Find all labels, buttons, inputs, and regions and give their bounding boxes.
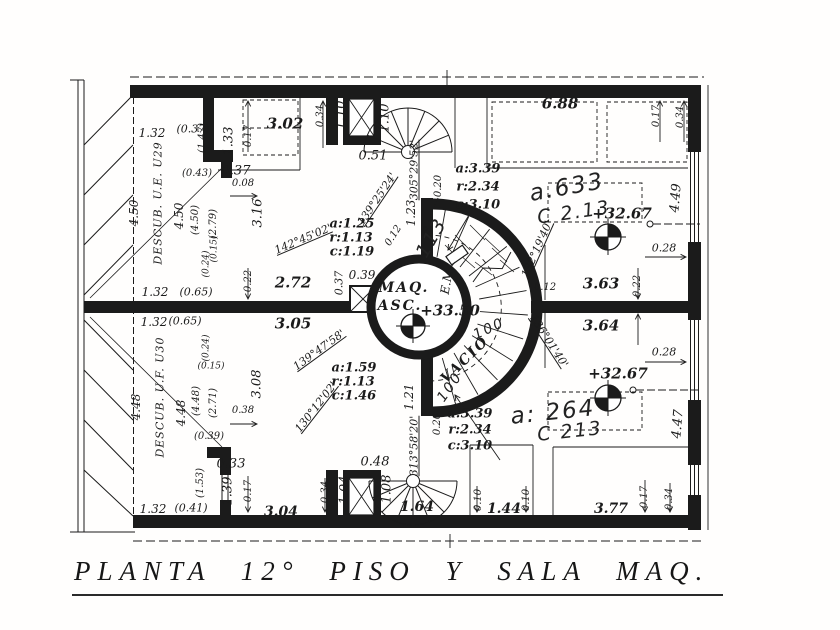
dim-label: 0.33 (217, 458, 246, 471)
level-marker-label: +32.67 (588, 367, 648, 382)
dim-label: (0.65) (179, 287, 212, 298)
dim-label: 0.37 (334, 271, 345, 296)
room-area-label: 3.05 (275, 317, 312, 332)
dim-label: 4.48 (175, 400, 187, 427)
room-area-label: 6.88 (542, 97, 579, 112)
room-area-label: 3.64 (583, 319, 620, 334)
angle-label: 305°29'52' (409, 140, 420, 201)
zone-label: DESCUB. U.F. U30 (155, 336, 166, 457)
dim-label: c:3.10 (456, 199, 500, 212)
drawing-title: PLANTA 12° PISO Y SALA MAQ. (72, 556, 723, 596)
dim-label: 0.34 (665, 488, 675, 510)
dim-label: 0.28 (652, 243, 677, 254)
dim-label: (0.15) (197, 363, 224, 372)
dim-label: (0.65) (168, 316, 201, 327)
dim-label: (0.24) (203, 250, 212, 277)
dim-label: 0.34 (676, 106, 686, 128)
dim-label: a:3.39 (456, 163, 501, 176)
dim-label: 3.08 (251, 370, 264, 399)
dim-label: 0.22 (633, 275, 643, 297)
dim-label: 3.16 (252, 199, 265, 228)
dim-label: c:1.46 (332, 390, 376, 403)
dim-label: 4.50 (173, 203, 185, 230)
zone-label: DESCUB. U.E. U29 (153, 141, 164, 264)
dim-label: 1.10 (335, 101, 348, 130)
angle-label: 313°58'20' (409, 416, 420, 477)
dim-label: 4.50 (128, 200, 140, 227)
dim-label: 0.48 (361, 456, 390, 469)
dim-label: 0.34 (321, 481, 331, 503)
dim-label: 0.20 (433, 413, 443, 435)
dim-label: 1.32 (142, 286, 169, 298)
dim-label: (2.71) (209, 388, 219, 418)
machine-room-label: MAQ. (379, 281, 430, 295)
dim-label: 0.51 (359, 150, 388, 163)
dim-label: r:2.34 (448, 424, 491, 437)
machine-room-label: ASC. (378, 299, 423, 313)
dim-label: 0.08 (232, 179, 254, 189)
dim-label: (0.24) (203, 334, 212, 361)
dim-label: c:3.10 (448, 440, 492, 453)
dim-label: 1.39 (222, 477, 235, 506)
dim-label: 0.38 (232, 406, 254, 416)
dim-label: 0.22 (244, 270, 254, 292)
dim-label: 0.17 (244, 125, 254, 147)
floor-plan-sheet: 1.32(0.37)1.330.173.02(1.47)0.341.101.10… (0, 0, 840, 630)
dim-label: 0.17 (244, 480, 254, 502)
room-area-label: 3.63 (583, 277, 620, 292)
dim-label: 1.10 (379, 104, 392, 133)
dim-label: 1.32 (141, 316, 168, 328)
dim-label: 1.32 (139, 127, 166, 139)
dim-label: 0.34 (316, 105, 326, 127)
dim-label: (1.53) (196, 468, 206, 498)
dim-label: 4.48 (130, 394, 142, 421)
level-marker-label: +33.50 (420, 304, 480, 319)
dim-label: 1.23 (405, 200, 417, 227)
dim-label: 0.37 (222, 165, 251, 178)
room-area-label: 3.02 (267, 117, 304, 132)
dim-label: 0.17 (652, 105, 662, 127)
dim-label: 1.33 (223, 127, 236, 156)
dim-label: 0.28 (652, 347, 677, 358)
dim-label: a:3.39 (448, 408, 493, 421)
dim-label: 1.04 (339, 476, 352, 505)
room-area-label: 3.04 (264, 505, 298, 519)
dim-label: (0.41) (174, 503, 207, 514)
room-area-label: 2.72 (275, 276, 312, 291)
dim-label: 4.47 (670, 409, 685, 439)
dim-label: 0.39 (349, 269, 376, 281)
dim-label: 0.17 (640, 486, 650, 508)
dim-label: 0.20 (434, 175, 444, 197)
dim-label: (4.50) (191, 205, 201, 235)
dim-label: 0.10 (522, 489, 532, 511)
dim-label: 1.32 (140, 503, 167, 515)
dim-label: 0.10 (474, 489, 484, 511)
room-area-label: 1.64 (400, 500, 434, 514)
dim-label: a:1.59 (332, 362, 377, 375)
dim-label: (0.39) (194, 432, 224, 442)
dim-label: r:1.13 (329, 232, 372, 245)
dim-label: r:2.34 (456, 181, 499, 194)
dim-label: (1.47) (198, 123, 208, 153)
room-area-label: 3.77 (594, 502, 628, 516)
dim-label: c:1.19 (330, 246, 374, 259)
dim-label: (0.43) (182, 169, 212, 179)
dim-label: 0.12 (534, 283, 556, 293)
dim-label: 4.49 (668, 183, 683, 213)
dim-label: 1.21 (403, 384, 415, 411)
dim-label: (0.15) (211, 235, 220, 262)
dim-label: (4.48) (192, 386, 202, 416)
room-area-label: 1.44 (487, 502, 521, 516)
dim-label: 1.08 (381, 475, 394, 504)
